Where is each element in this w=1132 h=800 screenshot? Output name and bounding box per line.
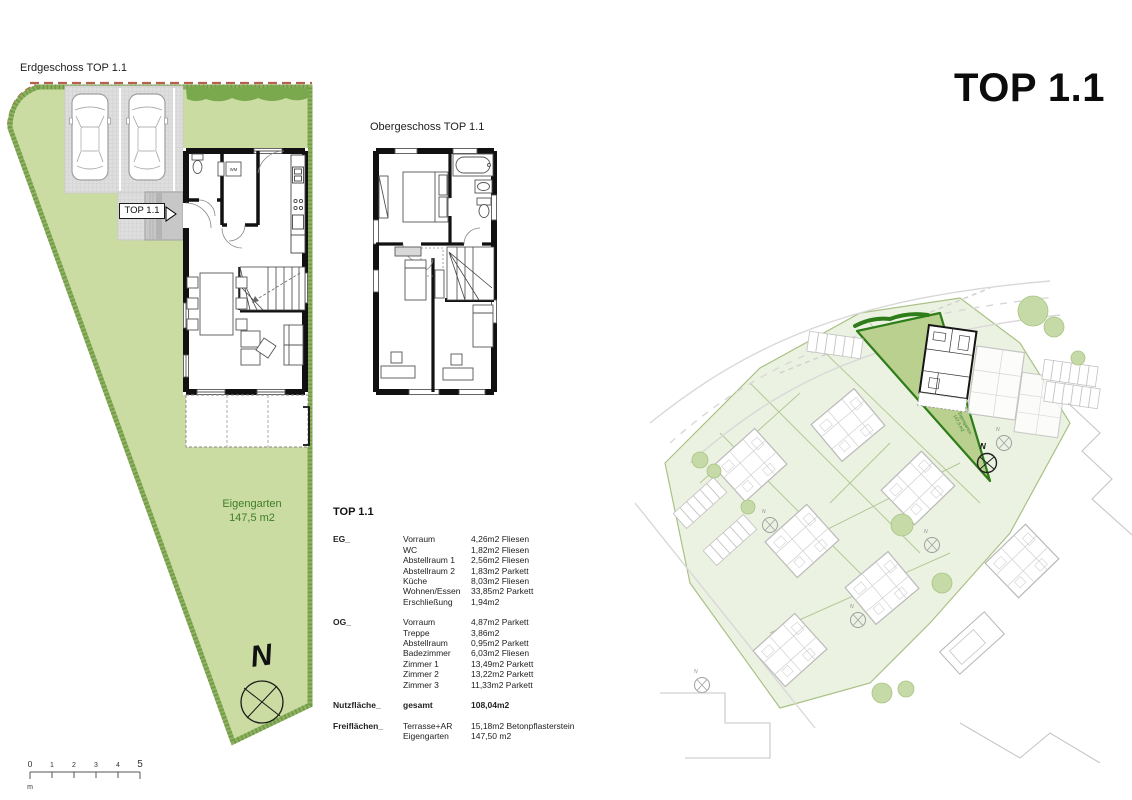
row-room-value: 0,95m2 Parkett xyxy=(471,638,633,648)
table-row: Zimmer 1 13,49m2 Parkett xyxy=(333,659,633,669)
kitchen-counter xyxy=(291,155,305,253)
row-room-name: Abstellraum xyxy=(403,638,471,648)
svg-text:3: 3 xyxy=(94,762,98,769)
row-room-name: Vorraum xyxy=(403,534,471,544)
row-section-key: OG_ xyxy=(333,617,403,627)
table-row: Abstellraum 1 2,56m2 Fliesen xyxy=(333,555,633,565)
row-section-key xyxy=(333,555,403,565)
area-table: TOP 1.1 EG_ Vorraum 4,26m2 Fliesen WC 1,… xyxy=(333,507,633,741)
row-room-name: Wohnen/Essen xyxy=(403,586,471,596)
row-room-value: 4,26m2 Fliesen xyxy=(471,534,633,544)
svg-text:WM: WM xyxy=(230,167,238,172)
svg-text:0: 0 xyxy=(28,759,33,769)
site-plan-drawing: Eigengarten 147,5 m2 xyxy=(630,253,1132,763)
highlighted-building xyxy=(918,325,977,412)
table-row: WC 1,82m2 Fliesen xyxy=(333,545,633,555)
row-room-value: 108,04m2 xyxy=(471,700,633,710)
table-row: Treppe 3,86m2 xyxy=(333,628,633,638)
row-room-name: Erschließung xyxy=(403,597,471,607)
table-row: Eigengarten 147,50 m2 xyxy=(333,731,633,741)
eg-building: WM xyxy=(183,148,308,395)
row-room-value: 3,86m2 xyxy=(471,628,633,638)
toilet-icon xyxy=(192,154,203,174)
row-room-value: 13,22m2 Parkett xyxy=(471,669,633,679)
row-room-name: Zimmer 1 xyxy=(403,659,471,669)
svg-text:1: 1 xyxy=(50,762,54,769)
row-section-key: Freiflächen_ xyxy=(333,721,403,731)
row-room-name: Zimmer 3 xyxy=(403,680,471,690)
row-section-key xyxy=(333,545,403,555)
svg-text:N: N xyxy=(924,529,928,535)
table-row: Erschließung 1,94m2 xyxy=(333,597,633,607)
erdgeschoss-plan-drawing: WM xyxy=(0,55,340,765)
neighbor-building xyxy=(968,346,1025,420)
table-row: Zimmer 2 13,22m2 Parkett xyxy=(333,669,633,679)
row-room-name: gesamt xyxy=(403,700,471,710)
svg-text:N: N xyxy=(762,509,766,515)
washing-machine-icon: WM xyxy=(218,162,241,176)
row-room-name: WC xyxy=(403,545,471,555)
table-row: Küche 8,03m2 Fliesen xyxy=(333,576,633,586)
row-room-name: Badezimmer xyxy=(403,648,471,658)
row-section-key: EG_ xyxy=(333,534,403,544)
svg-text:m: m xyxy=(27,784,33,791)
svg-text:5: 5 xyxy=(137,759,143,770)
area-table-rows: EG_ Vorraum 4,26m2 Fliesen WC 1,82m2 Fli… xyxy=(333,534,633,741)
row-section-key xyxy=(333,576,403,586)
row-room-value: 15,18m2 Betonpflasterstein xyxy=(471,721,633,731)
table-row: EG_ Vorraum 4,26m2 Fliesen xyxy=(333,534,633,544)
row-room-value: 1,83m2 Parkett xyxy=(471,566,633,576)
row-room-value: 1,82m2 Fliesen xyxy=(471,545,633,555)
svg-text:N: N xyxy=(980,442,986,451)
scale-bar: 0 1 2 3 4 5 m xyxy=(22,750,152,796)
row-room-name: Treppe xyxy=(403,628,471,638)
row-section-key xyxy=(333,638,403,648)
row-room-value: 33,85m2 Parkett xyxy=(471,586,633,596)
garden-label: Eigengarten 147,5 m2 xyxy=(157,497,347,525)
row-room-name: Abstellraum 1 xyxy=(403,555,471,565)
obergeschoss-label: Obergeschoss TOP 1.1 xyxy=(370,121,484,133)
row-section-key xyxy=(333,659,403,669)
svg-text:N: N xyxy=(850,604,854,610)
sheet-title: TOP 1.1 xyxy=(885,66,1105,111)
row-section-key xyxy=(333,680,403,690)
eg-stairs xyxy=(240,267,305,310)
table-row: Wohnen/Essen 33,85m2 Parkett xyxy=(333,586,633,596)
row-section-key xyxy=(333,628,403,638)
table-row: Badezimmer 6,03m2 Fliesen xyxy=(333,648,633,658)
svg-text:2: 2 xyxy=(72,762,76,769)
neighbor-building xyxy=(1014,372,1066,438)
hedge xyxy=(186,86,310,102)
row-room-name: Vorraum xyxy=(403,617,471,627)
svg-text:4: 4 xyxy=(116,762,120,769)
row-room-value: 1,94m2 xyxy=(471,597,633,607)
row-room-name: Eigengarten xyxy=(403,731,471,741)
row-room-value: 11,33m2 Parkett xyxy=(471,680,633,690)
row-section-key xyxy=(333,648,403,658)
svg-text:N: N xyxy=(996,427,1000,433)
row-room-value: 6,03m2 Fliesen xyxy=(471,648,633,658)
row-section-key: Nutzfläche_ xyxy=(333,700,403,710)
dining-table xyxy=(187,273,247,335)
row-room-value: 13,49m2 Parkett xyxy=(471,659,633,669)
row-section-key xyxy=(333,566,403,576)
svg-text:N: N xyxy=(694,669,698,675)
row-section-key xyxy=(333,731,403,741)
row-section-key xyxy=(333,597,403,607)
row-room-value: 8,03m2 Fliesen xyxy=(471,576,633,586)
table-row: Abstellraum 0,95m2 Parkett xyxy=(333,638,633,648)
row-room-name: Zimmer 2 xyxy=(403,669,471,679)
row-room-value: 147,50 m2 xyxy=(471,731,633,741)
row-room-value: 4,87m2 Parkett xyxy=(471,617,633,627)
row-section-key xyxy=(333,669,403,679)
obergeschoss-plan-drawing xyxy=(365,140,505,402)
row-room-value: 2,56m2 Fliesen xyxy=(471,555,633,565)
table-row: Freiflächen_ Terrasse+AR 15,18m2 Betonpf… xyxy=(333,721,633,731)
architectural-sheet: Erdgeschoss TOP 1.1 xyxy=(0,0,1132,800)
table-row: Abstellraum 2 1,83m2 Parkett xyxy=(333,566,633,576)
common-area xyxy=(940,612,1005,674)
row-room-name: Terrasse+AR xyxy=(403,721,471,731)
table-row: Nutzfläche_ gesamt 108,04m2 xyxy=(333,700,633,710)
entrance-unit-label: TOP 1.1 xyxy=(119,203,165,219)
table-row: OG_ Vorraum 4,87m2 Parkett xyxy=(333,617,633,627)
terrace xyxy=(186,395,309,447)
row-section-key xyxy=(333,586,403,596)
table-row: Zimmer 3 11,33m2 Parkett xyxy=(333,680,633,690)
row-room-name: Abstellraum 2 xyxy=(403,566,471,576)
area-table-title: TOP 1.1 xyxy=(333,507,633,517)
row-room-name: Küche xyxy=(403,576,471,586)
